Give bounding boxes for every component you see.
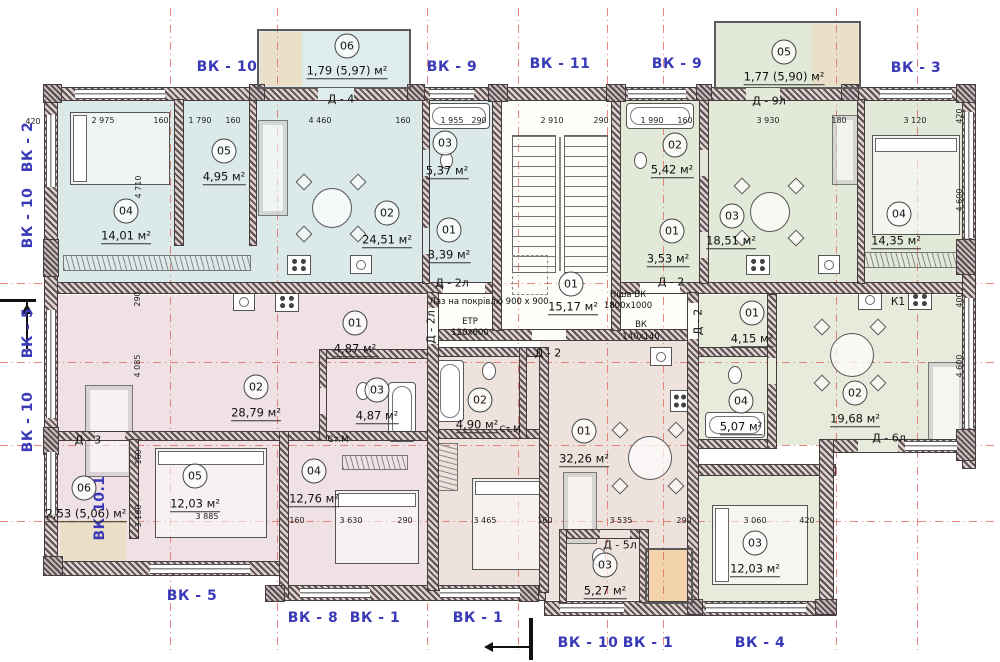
room-number: 04 — [302, 459, 327, 484]
axis-label: ВК - 10 — [21, 188, 35, 249]
axis-label: ВК - 5 — [21, 308, 35, 358]
dimension-label: 160 — [289, 517, 304, 525]
dimension-label: 180 — [831, 117, 846, 125]
floor-plan: ВК - 10ВК - 9ВК - 11ВК - 9ВК - 3ВК - 2ВК… — [0, 0, 1000, 662]
room-number: 01 — [572, 419, 597, 444]
dimension-label: 3 160 — [135, 505, 143, 528]
dimension-label: 4 710 — [135, 176, 143, 199]
dimension-label: 160 — [677, 117, 692, 125]
room-area: 32,26 м² — [559, 453, 609, 467]
room-area: 1,77 (5,90) м² — [744, 71, 825, 85]
room-area: 19,68 м² — [830, 413, 880, 427]
room-area: 14,35 м² — [871, 235, 921, 249]
dimension-label: 3 060 — [744, 517, 767, 525]
room-area: 15,17 м² — [548, 301, 598, 315]
dimension-label: 420 — [25, 118, 40, 126]
annotation: 1800х1000 — [604, 302, 652, 311]
dimension-label: 1 790 — [189, 117, 212, 125]
room-number: 06 — [72, 476, 97, 501]
room-area: 3,39 м² — [428, 249, 471, 263]
room-number: 04 — [887, 202, 912, 227]
room-area: 3,53 м² — [647, 253, 690, 267]
room-number: 05 — [212, 139, 237, 164]
annotation: Лаз на покрівлю 900 х 900 — [429, 298, 548, 307]
dimension-label: 3 120 — [904, 117, 927, 125]
dimension-label: 3 930 — [757, 117, 780, 125]
room-area: 12,03 м² — [730, 563, 780, 577]
room-area: 12,03 м² — [170, 498, 220, 512]
annotation: 140х140 — [622, 333, 659, 342]
dimension-label: 160 — [537, 517, 552, 525]
axis-label: ВК - 3 — [891, 61, 941, 75]
dimension-label: 160 — [135, 449, 143, 464]
dimension-label: 3 885 — [196, 513, 219, 521]
dimension-label: 3 630 — [340, 517, 363, 525]
room-number: 01 — [437, 218, 462, 243]
room-area: 4,90 м² — [456, 419, 499, 433]
axis-label: ВК - 10 — [21, 392, 35, 453]
axis-label: ВК - 5 — [167, 589, 217, 603]
dimension-label: 2 910 — [541, 117, 564, 125]
axis-label: ВК - 4 — [735, 636, 785, 650]
axis-label: ВК - 1 — [453, 611, 503, 625]
axis-label: ВК - 10 — [558, 636, 619, 650]
room-area: 14,01 м² — [101, 230, 151, 244]
room-area: 2,53 (5,06) м² — [46, 508, 127, 522]
dimension-label: 400 — [956, 292, 964, 307]
room-number: 05 — [772, 40, 797, 65]
room-area: 4,95 м² — [203, 171, 246, 185]
room-area: 12,76 м² — [289, 493, 339, 507]
room-area: 5,37 м² — [426, 165, 469, 179]
room-area: 1,79 (5,97) м² — [307, 65, 388, 79]
room-number: 02 — [843, 381, 868, 406]
door-label: Д - 2л — [435, 278, 469, 289]
axis-label: ВК - 8 — [288, 611, 338, 625]
room-number: 02 — [375, 201, 400, 226]
dimension-label: 1 955 — [441, 117, 464, 125]
room-number: 01 — [660, 219, 685, 244]
dimension-label: 4 600 — [956, 189, 964, 212]
axis-label: ВК - 1 — [350, 611, 400, 625]
axis-label: ВК - 11 — [530, 57, 591, 71]
room-area: 4,15 м² — [731, 333, 774, 347]
room-number: 05 — [183, 464, 208, 489]
annotation: 120х600 — [451, 329, 488, 338]
room-number: 06 — [335, 34, 360, 59]
dimension-label: 4 085 — [134, 355, 142, 378]
room-number: 03 — [433, 131, 458, 156]
axis-label: ВК - 10 — [197, 60, 258, 74]
room-area: 18,51 м² — [706, 235, 756, 249]
annotation: К1 — [891, 297, 905, 308]
door-label: Д - 2 — [693, 309, 704, 336]
door-label: Д - 2 — [658, 277, 685, 288]
dimension-label: 3 535 — [610, 517, 633, 525]
room-area: 5,07 м² — [720, 421, 763, 435]
annotation: Ст.М — [328, 436, 349, 445]
dimension-label: 290 — [397, 517, 412, 525]
dimension-label: 3 465 — [474, 517, 497, 525]
room-number: 01 — [343, 311, 368, 336]
room-area: 5,42 м² — [651, 164, 694, 178]
dimension-label: 420 — [956, 108, 964, 123]
dimension-label: 290 — [676, 517, 691, 525]
axis-label: ВК - 9 — [427, 60, 477, 74]
axis-label: ВК - 1 — [623, 636, 673, 650]
door-label: Д - 2 — [535, 348, 562, 359]
room-number: 04 — [114, 199, 139, 224]
annotation: Ніша ВК — [610, 291, 646, 300]
room-number: 02 — [468, 388, 493, 413]
dimension-label: 160 — [395, 117, 410, 125]
annotation: Ст.М — [500, 426, 521, 435]
room-number: 02 — [244, 375, 269, 400]
room-number: 03 — [593, 553, 618, 578]
door-label: Д - 5л — [603, 540, 637, 551]
room-area: 4,87 м² — [334, 343, 377, 357]
door-label: Д - 2л — [426, 310, 437, 344]
door-label: Д - 9л — [752, 96, 786, 107]
dimension-label: 290 — [134, 291, 142, 306]
dimension-label: 290 — [593, 117, 608, 125]
dimension-label: 2 975 — [92, 117, 115, 125]
room-number: 01 — [559, 272, 584, 297]
room-number: 03 — [720, 204, 745, 229]
dimension-label: 160 — [225, 117, 240, 125]
door-label: Д - 6л — [872, 433, 906, 444]
room-number: 03 — [743, 531, 768, 556]
room-number: 03 — [365, 378, 390, 403]
room-area: 28,79 м² — [231, 407, 281, 421]
door-label: Д - 3 — [75, 435, 102, 446]
annotation: ВК — [635, 321, 647, 330]
labels-layer: ВК - 10ВК - 9ВК - 11ВК - 9ВК - 3ВК - 2ВК… — [0, 0, 1000, 662]
dimension-label: 4 460 — [309, 117, 332, 125]
room-number: 01 — [740, 301, 765, 326]
room-number: 02 — [663, 133, 688, 158]
door-label: Д - 4 — [328, 94, 355, 105]
annotation: ЕТР — [462, 318, 478, 327]
dimension-label: 160 — [153, 117, 168, 125]
axis-label: ВК - 2 — [21, 122, 35, 172]
dimension-label: 420 — [799, 517, 814, 525]
dimension-label: 4 600 — [956, 355, 964, 378]
room-area: 5,27 м² — [584, 585, 627, 599]
room-area: 24,51 м² — [362, 234, 412, 248]
axis-label: ВК - 9 — [652, 57, 702, 71]
dimension-label: 1 990 — [641, 117, 664, 125]
room-area: 4,87 м² — [356, 410, 399, 424]
dimension-label: 290 — [471, 117, 486, 125]
room-number: 04 — [729, 389, 754, 414]
